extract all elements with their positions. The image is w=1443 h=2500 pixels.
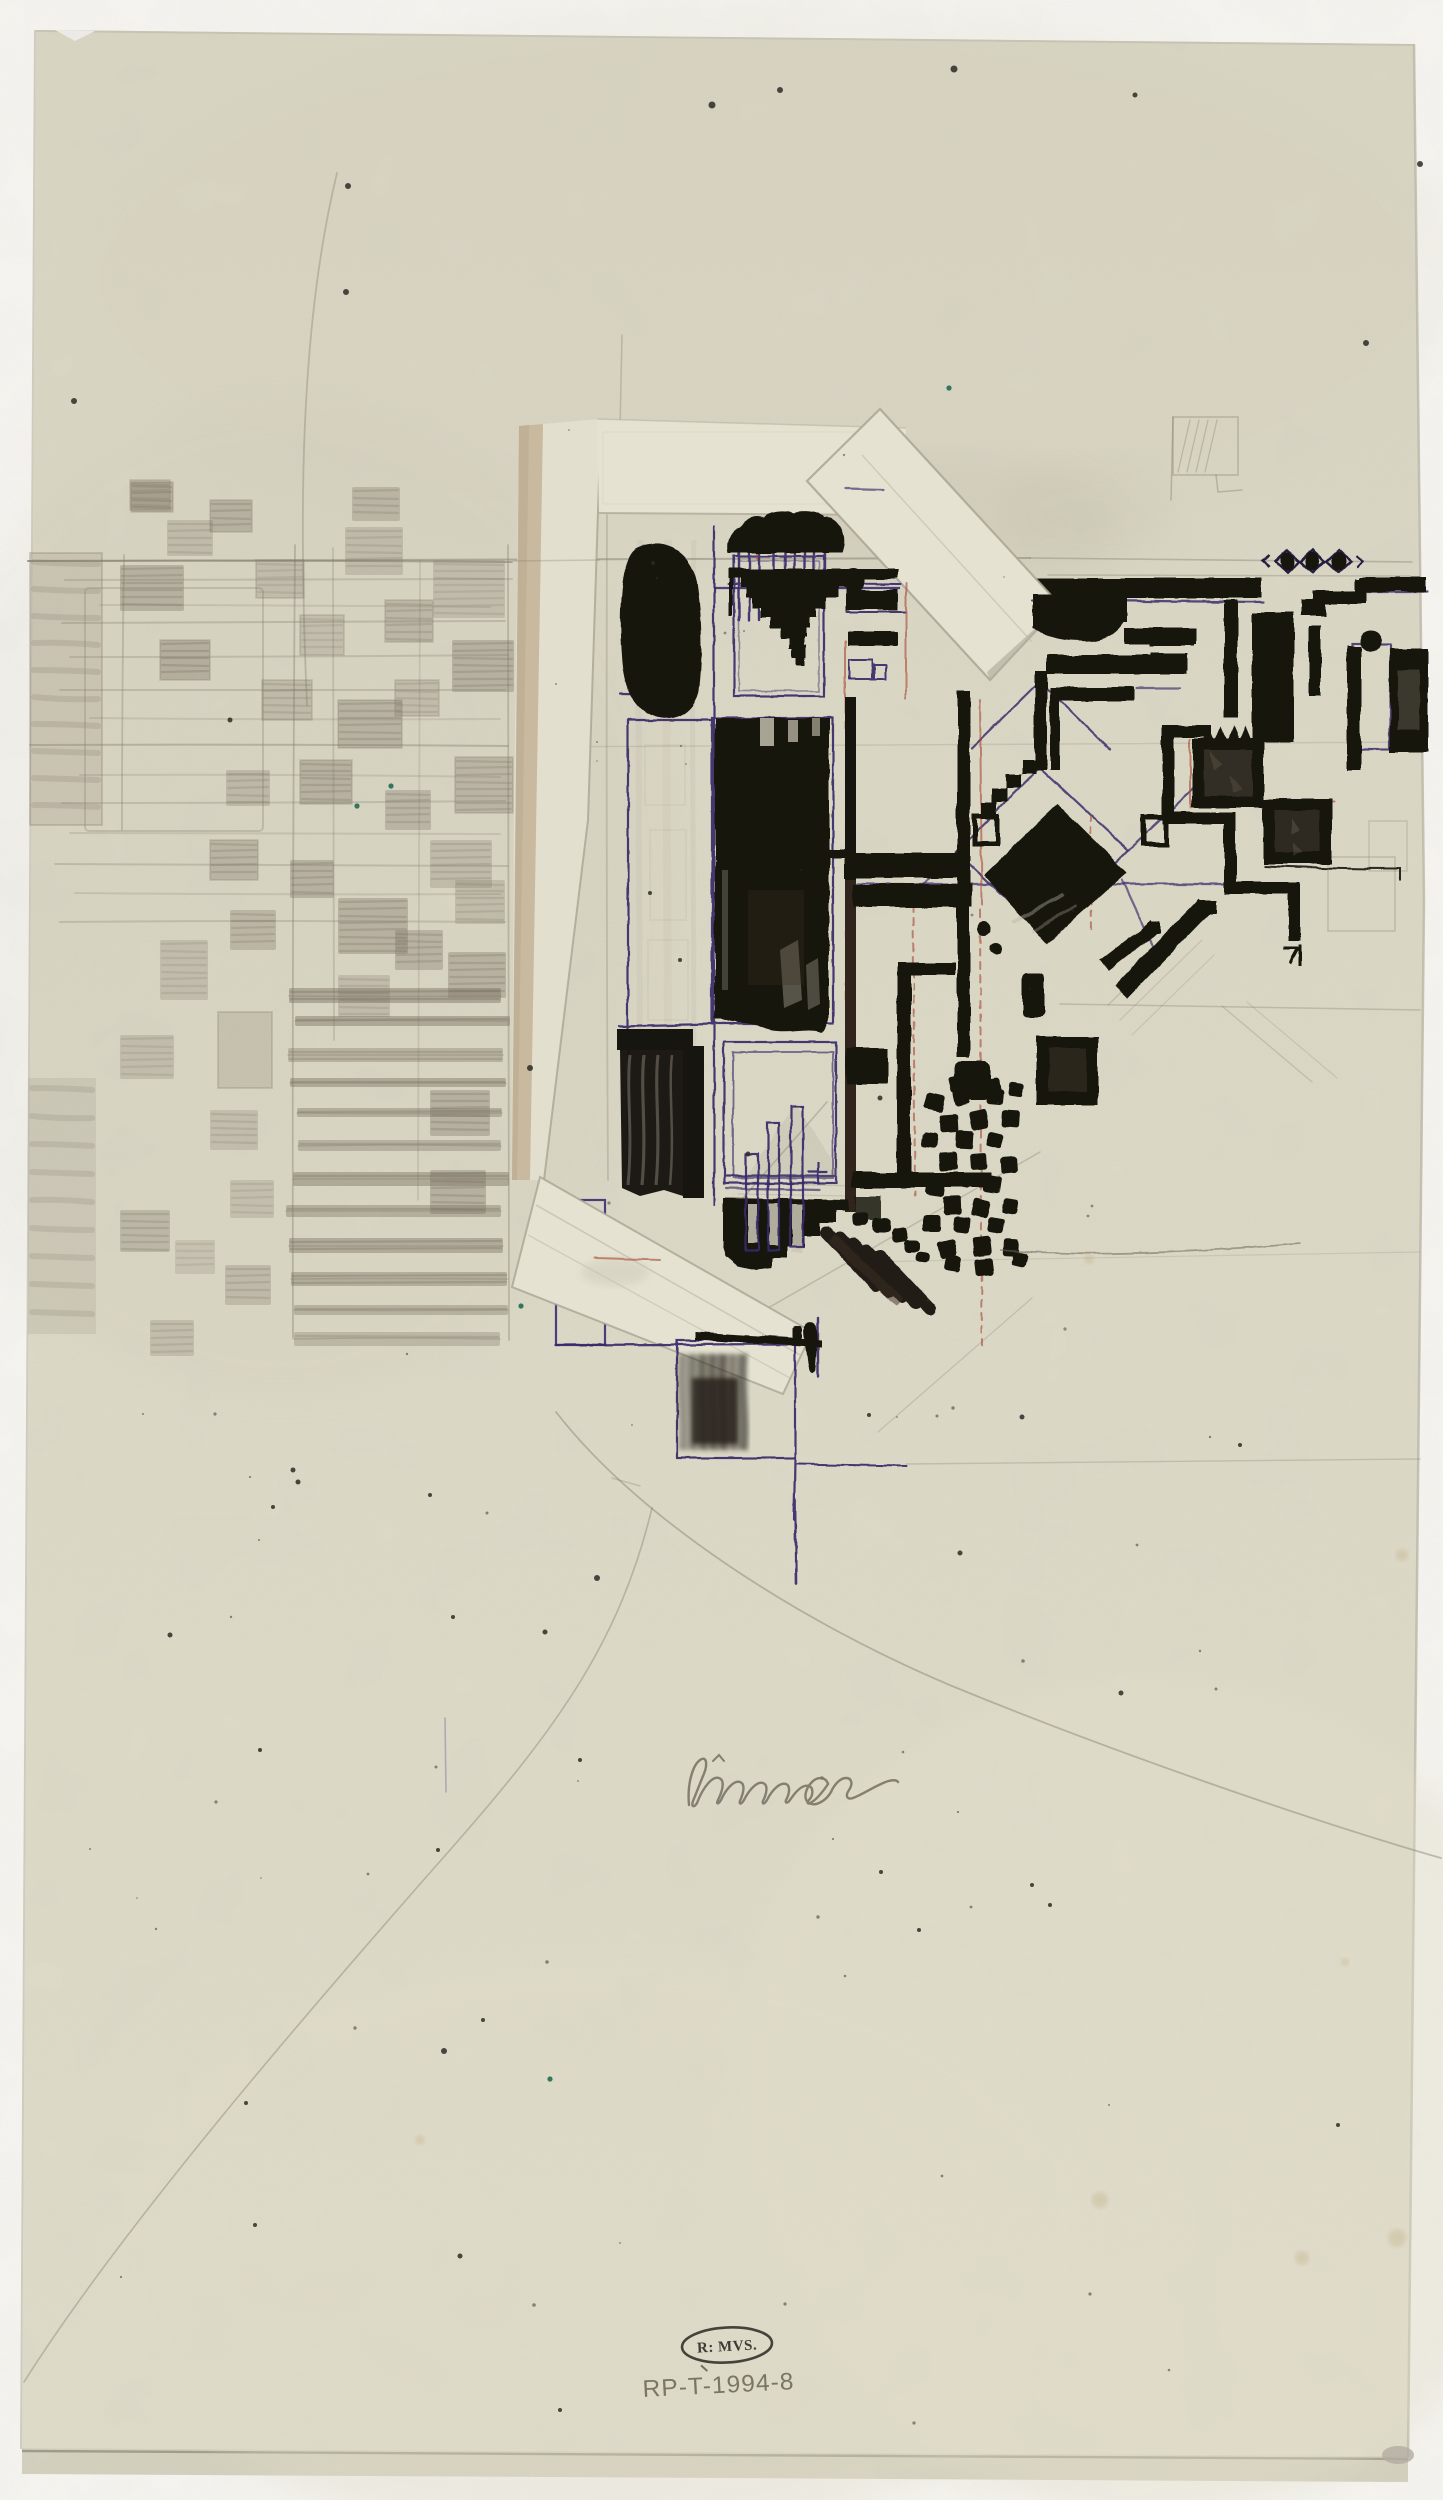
- svg-text:R: MVS.: R: MVS.: [697, 2337, 758, 2356]
